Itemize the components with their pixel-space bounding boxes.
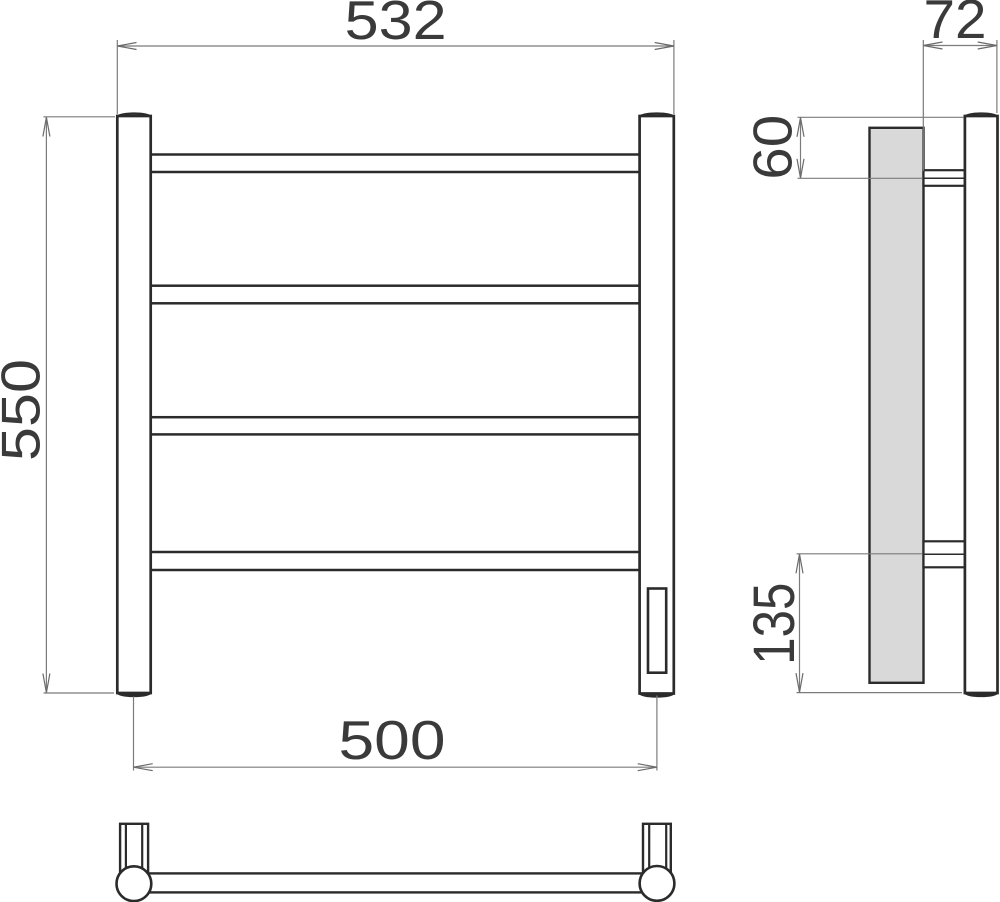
svg-text:500: 500 (339, 709, 446, 771)
svg-text:532: 532 (345, 0, 447, 51)
svg-text:72: 72 (924, 0, 987, 50)
svg-text:135: 135 (742, 583, 807, 665)
svg-text:60: 60 (742, 115, 804, 180)
svg-text:550: 550 (0, 359, 52, 461)
